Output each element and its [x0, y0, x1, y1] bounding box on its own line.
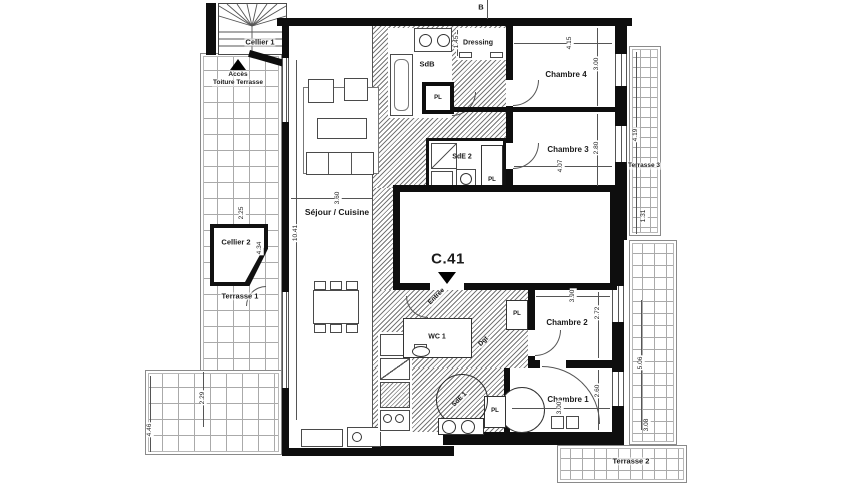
closet-label: PL	[434, 95, 442, 101]
dim-chambre4-width: 4.15	[567, 36, 574, 51]
staircase-icon	[219, 4, 286, 54]
chair	[314, 281, 326, 290]
coffee-table	[317, 118, 367, 139]
bathtub-inner	[394, 59, 409, 111]
room-label-dressing: Dressing	[463, 40, 493, 47]
chambre4-door-gap	[506, 80, 513, 106]
room-label-chambre1: Chambre 1	[547, 396, 588, 404]
room-label-sdb: SdB	[420, 60, 435, 68]
core-hatch-strip	[372, 188, 393, 290]
kitchen-appliance-hatched	[380, 382, 410, 408]
washer-drum	[442, 420, 456, 434]
roof-access-label-line1: Accès	[227, 72, 248, 79]
dressing-shelf	[459, 52, 472, 58]
dim-line	[598, 292, 599, 358]
terrace-1-lower-grid	[145, 370, 282, 455]
room-label-sde2: SdE 2	[452, 154, 471, 161]
dim-chambre1-height: 2.60	[595, 384, 602, 399]
sink-bowl	[352, 432, 362, 442]
dim-line	[636, 52, 637, 234]
dim-terrasse3-bottom: 1.31	[641, 209, 648, 224]
room-label-chambre3: Chambre 3	[547, 146, 588, 154]
dim-terrasse1-left: 2.29	[200, 391, 207, 406]
roof-access-label-line2: Toiture Terrasse	[212, 80, 264, 87]
washbasin-bowl	[419, 34, 432, 47]
window-chambre2	[612, 286, 624, 322]
closet-label: PL	[513, 311, 521, 317]
room-label-cellier2: Cellier 2	[220, 238, 251, 246]
dim-terrasse3-height: 4.19	[633, 128, 640, 143]
armchair	[344, 78, 368, 101]
wc-bowl	[460, 173, 472, 185]
washer-drum	[461, 420, 475, 434]
chambre3-door-gap	[506, 143, 513, 169]
dim-right-mid: 5.06	[638, 356, 645, 371]
window-chambre1	[612, 372, 624, 406]
dim-chambre1-width: 3.00	[557, 401, 564, 416]
wall-north	[277, 18, 632, 26]
nightstand	[566, 416, 579, 429]
room-label-cellier1: Cellier 1	[244, 38, 275, 46]
sofa	[306, 152, 374, 175]
window-chambre4	[615, 54, 627, 86]
chambre2-door-gap	[528, 330, 535, 356]
dim-chambre3-width: 4.07	[558, 159, 565, 174]
room-label-chambre4: Chambre 4	[545, 71, 586, 79]
kitchen-counter	[301, 429, 343, 447]
section-marker: B	[478, 3, 483, 11]
entry-arrow-icon	[438, 272, 456, 284]
closet-label: PL	[488, 177, 496, 183]
dim-cellier2-top: 2.25	[239, 206, 246, 221]
closet-label: PL	[491, 408, 499, 414]
dim-chambre2-height: 2.72	[595, 306, 602, 321]
section-line	[487, 0, 488, 19]
window-west-2	[282, 292, 289, 388]
room-label-wc1: WC 1	[428, 334, 446, 341]
nightstand	[551, 416, 564, 429]
dim-chambre4-height: 3.00	[594, 57, 601, 72]
floor-plan: Cellier 1 Accès Toiture Terrasse Cellier…	[0, 0, 860, 484]
room-label-terrasse3: Terrasse 3	[627, 163, 661, 170]
dim-sejour-width: 3.60	[335, 191, 342, 206]
chair	[314, 324, 326, 333]
sink-bowl	[395, 414, 404, 423]
sofa-seat-line	[351, 153, 352, 174]
roof-access-arrow-icon	[230, 59, 246, 70]
armchair	[308, 79, 334, 103]
window-west-1	[282, 58, 289, 122]
dim-line	[598, 370, 599, 430]
dim-cellier2-side: 4.34	[257, 241, 264, 256]
room-label-chambre2: Chambre 2	[546, 319, 587, 327]
dim-line	[291, 198, 373, 199]
kitchen-appliance	[380, 358, 410, 380]
window-chambre3	[615, 126, 627, 162]
dim-sejour-height: 10.41	[293, 224, 300, 242]
chair	[346, 281, 358, 290]
chair	[346, 324, 358, 333]
chair	[330, 281, 342, 290]
room-label-terrasse1: Terrasse 1	[221, 292, 260, 300]
landing-box	[393, 185, 617, 290]
unit-number: C.41	[431, 252, 465, 267]
dim-chambre2-width: 3.90	[570, 289, 577, 304]
room-label-sejour: Séjour / Cuisine	[305, 208, 369, 217]
terrace-2-strip-grid	[629, 240, 677, 445]
dim-right-bottom: 3.08	[644, 418, 651, 433]
wall	[206, 3, 216, 55]
wc1-bowl	[412, 346, 430, 357]
dining-table	[313, 290, 359, 324]
dim-terrasse1-bottom: 4.46	[147, 423, 154, 438]
room-label-terrasse2: Terrasse 2	[612, 457, 651, 465]
dim-line	[150, 376, 151, 452]
sink-bowl	[383, 414, 392, 423]
washbasin-bowl	[437, 34, 450, 47]
dressing-shelf	[490, 52, 503, 58]
sofa-seat-line	[328, 153, 329, 174]
staircase-box	[218, 3, 287, 55]
chair	[330, 324, 342, 333]
dim-dressing-height: 1.45	[454, 35, 461, 50]
dim-chambre3-height: 2.80	[594, 141, 601, 156]
